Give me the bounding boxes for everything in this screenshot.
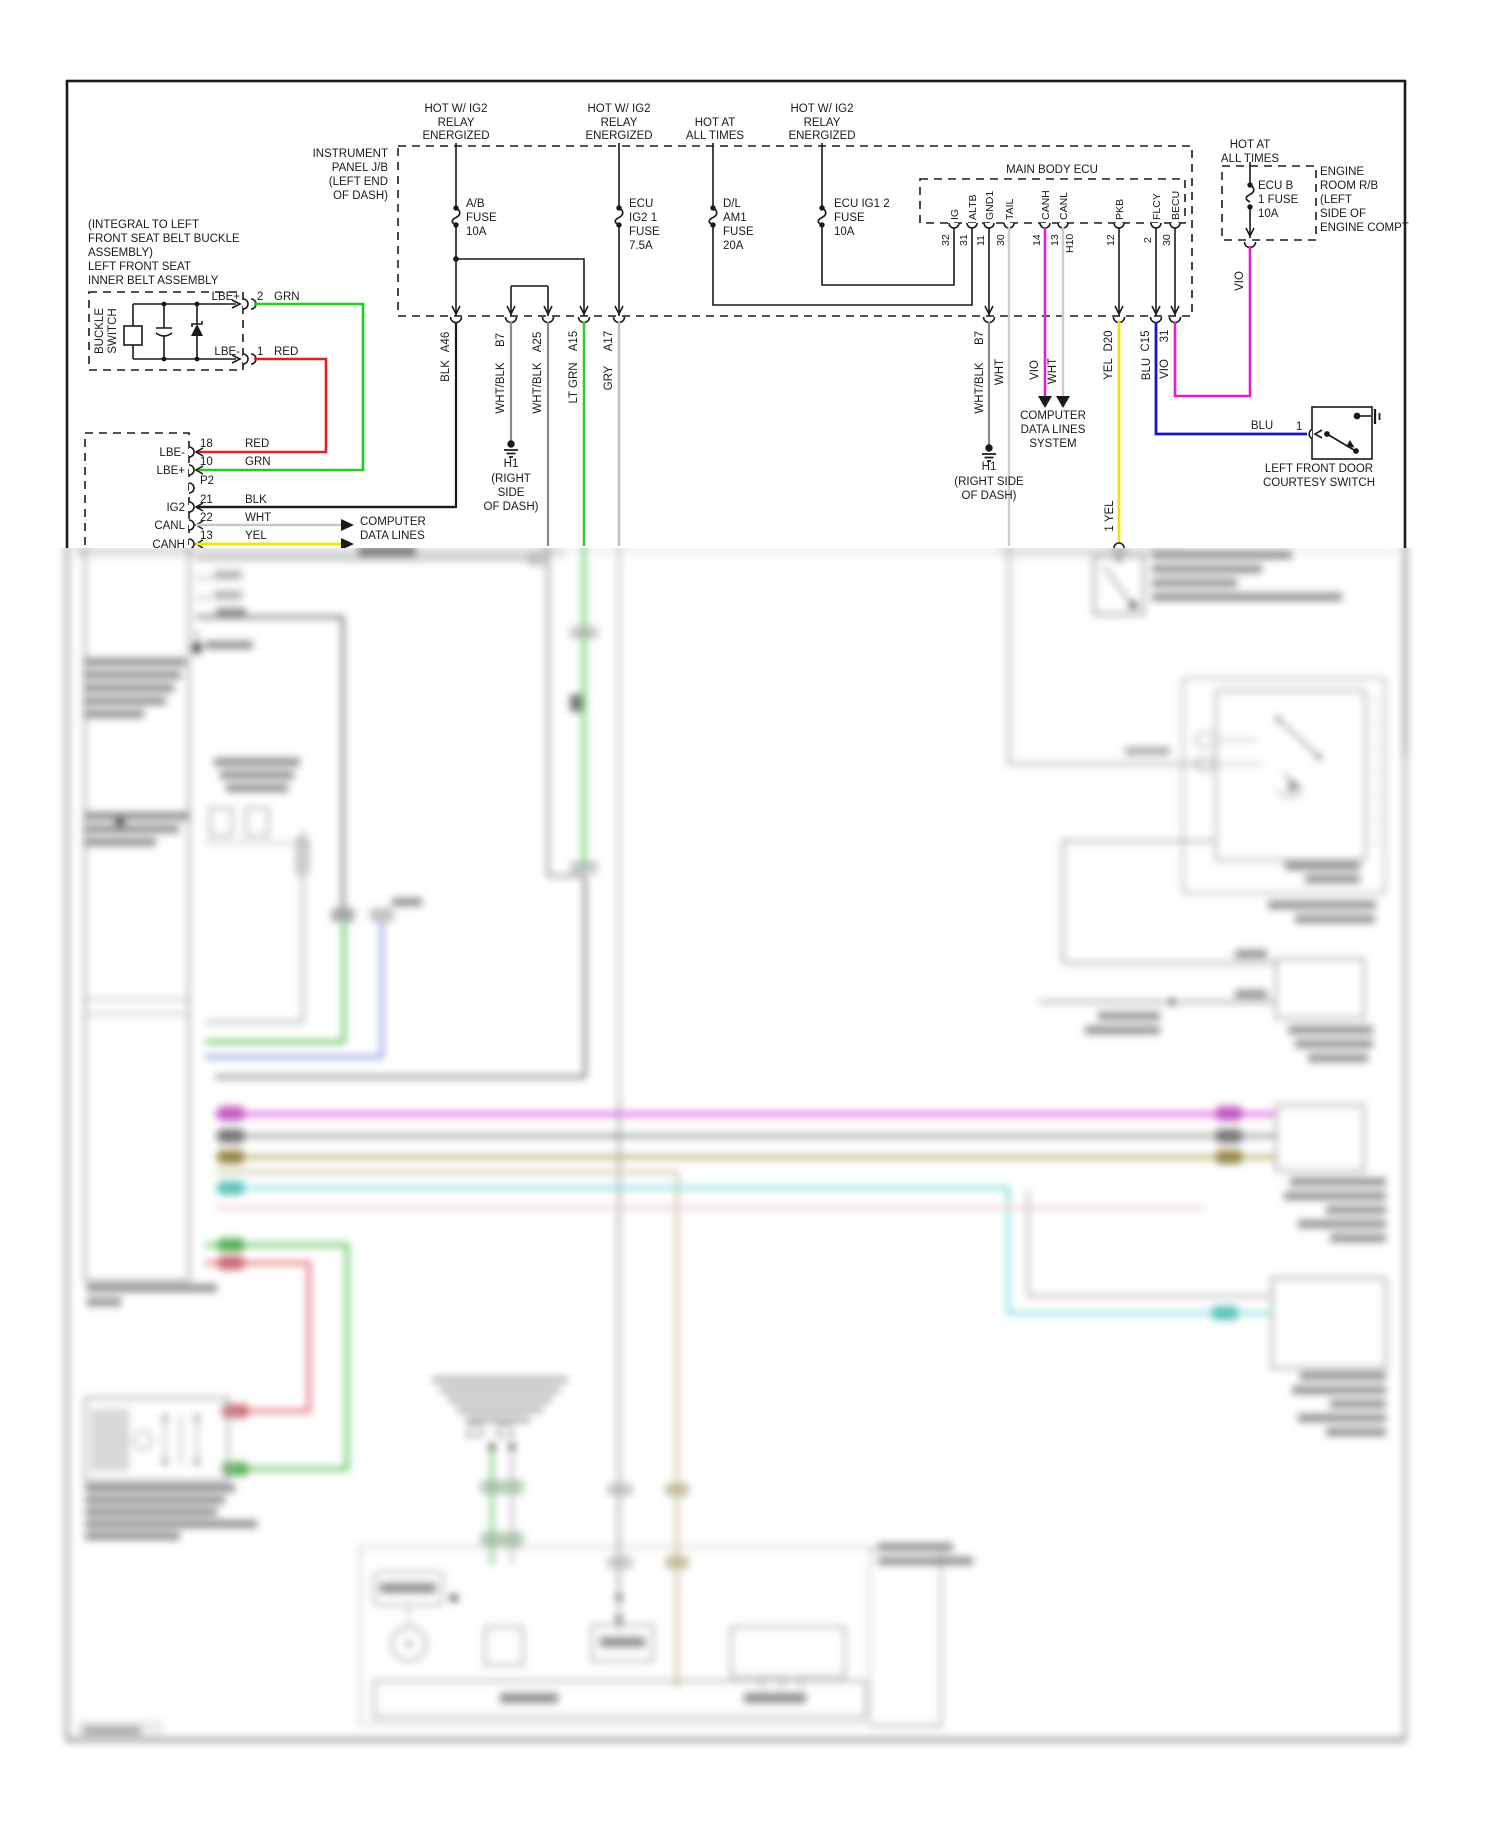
svg-text:B7: B7: [495, 333, 507, 347]
svg-text:1: 1: [1296, 421, 1302, 433]
svg-text:13: 13: [200, 530, 213, 542]
svg-text:CANH: CANH: [1040, 190, 1052, 220]
svg-text:12: 12: [1105, 234, 1117, 246]
svg-text:A/B: A/B: [466, 198, 485, 210]
svg-text:SWITCH: SWITCH: [107, 308, 119, 353]
svg-text:LBE-: LBE-: [214, 346, 240, 358]
svg-text:LT GRN: LT GRN: [568, 362, 580, 403]
svg-text:WHT: WHT: [994, 359, 1006, 385]
svg-text:WHT: WHT: [1047, 358, 1059, 384]
svg-text:31: 31: [958, 234, 970, 246]
svg-text:HOT AT: HOT AT: [695, 117, 735, 129]
svg-text:ENGINE COMPT: ENGINE COMPT: [1320, 222, 1409, 234]
svg-text:PANEL J/B: PANEL J/B: [332, 162, 389, 174]
svg-text:BLU: BLU: [1251, 420, 1273, 432]
svg-text:(LEFT: (LEFT: [1320, 194, 1352, 206]
svg-text:10A: 10A: [1258, 208, 1279, 220]
svg-text:31: 31: [1159, 330, 1171, 343]
svg-text:30: 30: [995, 234, 1007, 246]
svg-text:10A: 10A: [466, 226, 487, 238]
svg-text:(LEFT END: (LEFT END: [329, 176, 388, 188]
svg-text:ENERGIZED: ENERGIZED: [585, 130, 652, 142]
svg-text:ALTB: ALTB: [967, 195, 979, 220]
svg-text:HOT W/ IG2: HOT W/ IG2: [790, 103, 853, 115]
svg-text:RED: RED: [245, 438, 269, 450]
svg-text:ECU: ECU: [629, 198, 653, 210]
svg-text:RELAY: RELAY: [438, 117, 475, 129]
svg-text:FLCY: FLCY: [1151, 193, 1163, 220]
svg-text:OF DASH): OF DASH): [484, 501, 539, 513]
svg-text:WHT/BLK: WHT/BLK: [495, 362, 507, 413]
svg-text:(INTEGRAL TO LEFT: (INTEGRAL TO LEFT: [88, 219, 199, 231]
svg-text:HOT AT: HOT AT: [1230, 139, 1270, 151]
svg-text:VIO: VIO: [1159, 359, 1171, 379]
svg-text:LEFT FRONT SEAT: LEFT FRONT SEAT: [88, 261, 191, 273]
svg-text:IG2: IG2: [166, 502, 185, 514]
svg-text:RED: RED: [274, 346, 298, 358]
svg-text:2: 2: [1142, 237, 1154, 243]
svg-text:WHT/BLK: WHT/BLK: [974, 362, 986, 413]
svg-text:IG: IG: [949, 209, 961, 220]
svg-text:LBE+: LBE+: [212, 291, 241, 303]
svg-text:A17: A17: [603, 331, 615, 351]
svg-text:DATA LINES: DATA LINES: [360, 530, 425, 542]
svg-text:INSTRUMENT: INSTRUMENT: [313, 148, 388, 160]
svg-text:C15: C15: [1140, 330, 1152, 351]
svg-text:LEFT FRONT DOOR: LEFT FRONT DOOR: [1265, 463, 1373, 475]
svg-text:FRONT SEAT BELT BUCKLE: FRONT SEAT BELT BUCKLE: [88, 233, 240, 245]
svg-text:OF DASH): OF DASH): [962, 490, 1017, 502]
svg-text:FUSE: FUSE: [629, 226, 660, 238]
svg-text:13: 13: [1049, 234, 1061, 246]
svg-text:B7: B7: [974, 331, 986, 345]
svg-text:1 FUSE: 1 FUSE: [1258, 194, 1299, 206]
svg-text:HOT W/ IG2: HOT W/ IG2: [424, 103, 487, 115]
svg-text:1 YEL: 1 YEL: [1104, 500, 1116, 532]
svg-text:YEL: YEL: [245, 530, 267, 542]
svg-text:SIDE OF: SIDE OF: [1320, 208, 1366, 220]
svg-text:CANL: CANL: [1058, 192, 1070, 220]
svg-text:BLK: BLK: [440, 360, 452, 382]
svg-text:RELAY: RELAY: [804, 117, 841, 129]
svg-text:COMPUTER: COMPUTER: [360, 516, 426, 528]
svg-text:BLU: BLU: [1141, 358, 1153, 380]
svg-text:A25: A25: [532, 332, 544, 352]
svg-text:ECU IG1 2: ECU IG1 2: [834, 198, 890, 210]
svg-text:H10: H10: [1064, 234, 1076, 253]
svg-text:LBE+: LBE+: [157, 465, 186, 477]
svg-text:LBE-: LBE-: [159, 447, 185, 459]
svg-text:BLK: BLK: [245, 494, 267, 506]
svg-text:A46: A46: [440, 332, 452, 352]
svg-text:MAIN BODY ECU: MAIN BODY ECU: [1006, 164, 1098, 176]
svg-text:GRY: GRY: [603, 365, 615, 390]
svg-text:FUSE: FUSE: [723, 226, 754, 238]
svg-text:OF DASH): OF DASH): [333, 190, 388, 202]
svg-text:FUSE: FUSE: [466, 212, 497, 224]
svg-text:21: 21: [200, 494, 213, 506]
svg-text:10A: 10A: [834, 226, 855, 238]
svg-text:GND1: GND1: [984, 191, 996, 220]
svg-text:INNER BELT ASSEMBLY: INNER BELT ASSEMBLY: [88, 275, 219, 287]
svg-text:IG2 1: IG2 1: [629, 212, 657, 224]
svg-text:COURTESY SWITCH: COURTESY SWITCH: [1263, 477, 1375, 489]
svg-text:WHT/BLK: WHT/BLK: [532, 362, 544, 413]
svg-text:14: 14: [1031, 234, 1043, 246]
svg-text:P2: P2: [200, 475, 214, 487]
svg-text:ENERGIZED: ENERGIZED: [788, 130, 855, 142]
svg-text:RELAY: RELAY: [601, 117, 638, 129]
svg-text:18: 18: [200, 438, 213, 450]
svg-text:D/L: D/L: [723, 198, 742, 210]
svg-text:ROOM R/B: ROOM R/B: [1320, 180, 1378, 192]
svg-text:A15: A15: [568, 331, 580, 351]
svg-text:30: 30: [1161, 234, 1173, 246]
svg-text:ALL TIMES: ALL TIMES: [1221, 153, 1279, 165]
svg-text:20A: 20A: [723, 240, 744, 252]
svg-text:COMPUTER: COMPUTER: [1020, 410, 1086, 422]
svg-text:ENGINE: ENGINE: [1320, 166, 1364, 178]
svg-text:SIDE: SIDE: [498, 487, 525, 499]
svg-text:22: 22: [200, 512, 213, 524]
svg-text:2: 2: [257, 291, 263, 303]
svg-text:(RIGHT: (RIGHT: [491, 473, 531, 485]
svg-text:ASSEMBLY): ASSEMBLY): [88, 247, 153, 259]
svg-text:1: 1: [257, 346, 263, 358]
svg-text:BUCKLE: BUCKLE: [94, 308, 106, 354]
svg-text:AM1: AM1: [723, 212, 747, 224]
svg-text:DATA LINES: DATA LINES: [1021, 424, 1086, 436]
svg-text:PKB: PKB: [1114, 199, 1126, 220]
svg-text:(RIGHT SIDE: (RIGHT SIDE: [954, 476, 1024, 488]
svg-text:ENERGIZED: ENERGIZED: [422, 130, 489, 142]
svg-text:H1: H1: [504, 458, 519, 470]
svg-text:H1: H1: [982, 461, 997, 473]
svg-text:SYSTEM: SYSTEM: [1029, 438, 1076, 450]
svg-text:D20: D20: [1103, 330, 1115, 351]
svg-text:ECU B: ECU B: [1258, 180, 1293, 192]
svg-text:WHT: WHT: [245, 512, 271, 524]
svg-text:VIO: VIO: [1029, 360, 1041, 380]
svg-text:VIO: VIO: [1234, 271, 1246, 291]
svg-text:YEL: YEL: [1103, 358, 1115, 380]
svg-text:10: 10: [200, 456, 213, 468]
svg-text:ALL TIMES: ALL TIMES: [686, 130, 744, 142]
svg-text:HOT W/ IG2: HOT W/ IG2: [587, 103, 650, 115]
svg-text:32: 32: [940, 234, 952, 246]
svg-text:GRN: GRN: [274, 291, 300, 303]
svg-text:11: 11: [975, 235, 987, 246]
svg-text:7.5A: 7.5A: [629, 240, 653, 252]
svg-text:FUSE: FUSE: [834, 212, 865, 224]
svg-text:BECU: BECU: [1170, 191, 1182, 220]
svg-text:CANL: CANL: [154, 520, 185, 532]
svg-text:GRN: GRN: [245, 456, 271, 468]
svg-text:TAIL: TAIL: [1004, 198, 1016, 220]
